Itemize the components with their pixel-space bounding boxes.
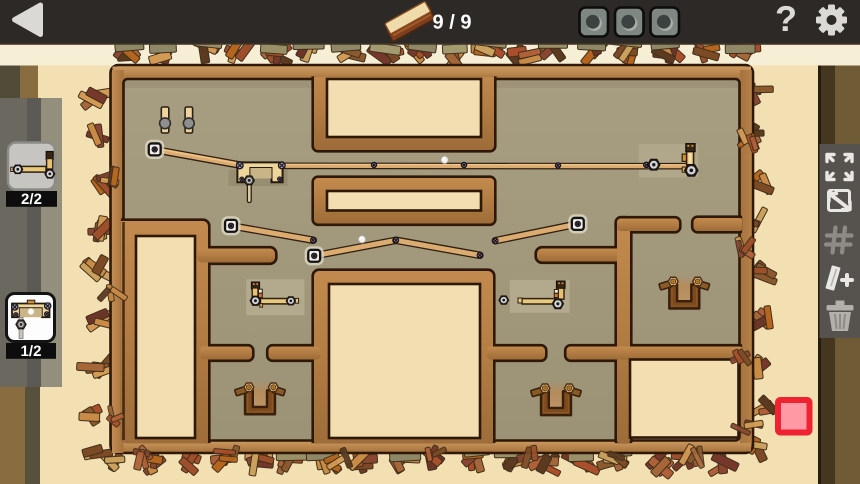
svg-text:9 / 9: 9 / 9 xyxy=(433,11,472,33)
svg-text:2/2: 2/2 xyxy=(21,191,42,208)
svg-text:?: ? xyxy=(775,0,797,39)
svg-text:1/2: 1/2 xyxy=(21,343,42,360)
